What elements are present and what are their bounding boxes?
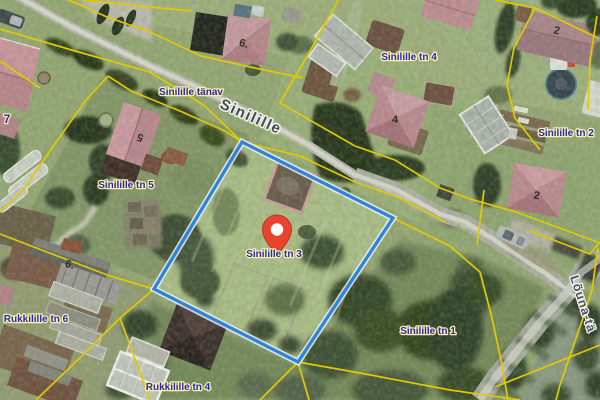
svg-text:Sinilille tn 1: Sinilille tn 1 [400, 326, 456, 337]
svg-text:4: 4 [392, 114, 399, 126]
svg-text:Rukkilille tn 4: Rukkilille tn 4 [146, 382, 211, 393]
svg-text:Sinilille tn 4: Sinilille tn 4 [381, 52, 437, 63]
svg-text:Sinilille tn 3: Sinilille tn 3 [246, 249, 302, 260]
svg-text:7: 7 [4, 112, 11, 126]
svg-text:Rukkilille tn 6: Rukkilille tn 6 [4, 314, 69, 325]
svg-text:Sinilille tänav: Sinilille tänav [159, 87, 223, 98]
svg-text:Sinilille tn 5: Sinilille tn 5 [98, 180, 154, 191]
svg-text:Sinilille tn 2: Sinilille tn 2 [538, 128, 594, 139]
